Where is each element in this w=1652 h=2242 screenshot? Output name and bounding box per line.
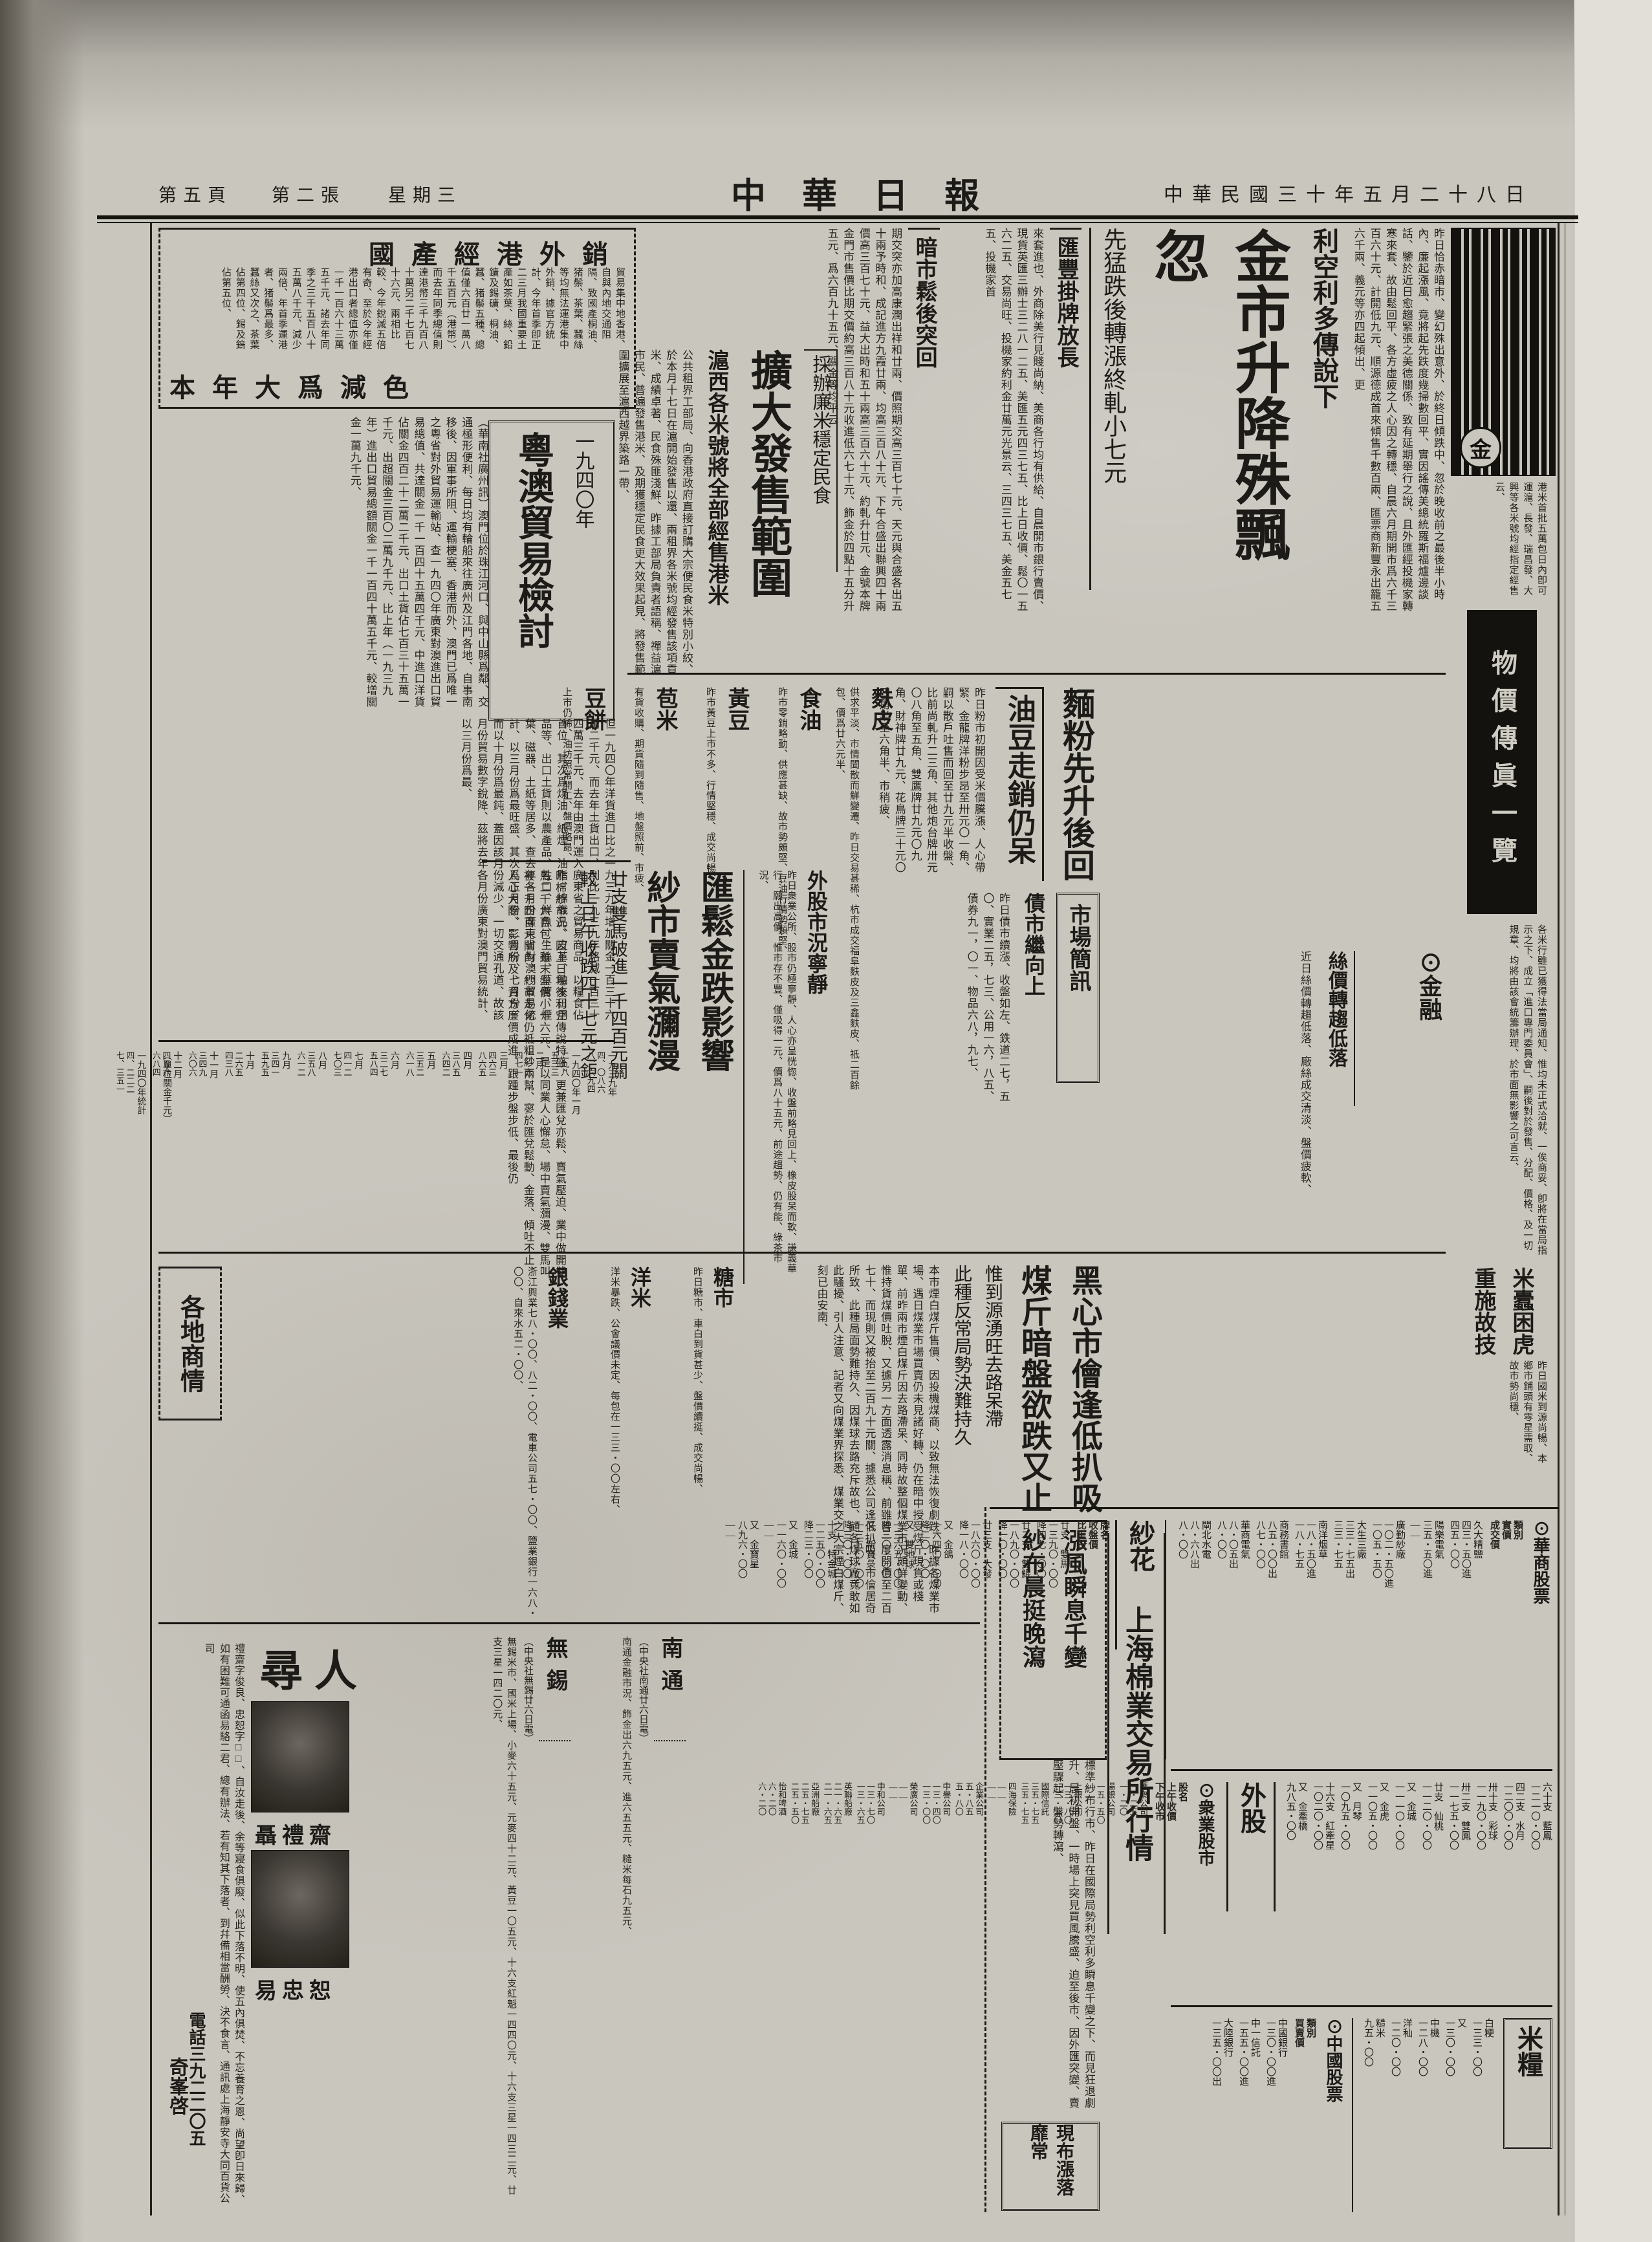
share-name: 榮廣公司 — [908, 1782, 918, 1879]
share-name: 國際信託 — [1039, 1782, 1050, 1879]
yarn-brand: 廿二支 雙鯤 — [1019, 1520, 1031, 1617]
huashang-row: 大生三廠 三三・七五出 三三・七五 — [1332, 1520, 1367, 1759]
foreign-yarn-price: 一〇二〇・〇〇 — [1312, 1782, 1323, 1860]
export-headline-bottom: 本年大爲減色 — [169, 367, 426, 404]
share-pm: 一三・五〇 — [1052, 1782, 1063, 1853]
shahua-col-name: 牌名 — [1098, 1520, 1110, 1617]
yueao-table-column: 十月 二六五 四三八 — [223, 1051, 254, 1229]
sheet-number: 第二張 — [272, 181, 375, 207]
masthead: 中華日報 — [718, 167, 1028, 207]
regional-box-label: 各地商情 — [173, 1294, 208, 1393]
waigu-label: 外股 — [1226, 1782, 1276, 1911]
yueao-table-column: 十一月 三四九 六〇六 — [187, 1051, 218, 1229]
bond-headline: 債市繼向上 — [1019, 893, 1049, 1048]
share-am: 五・八五 — [964, 1782, 974, 1860]
bank-price: 一三五・〇〇出 — [1210, 2018, 1222, 2096]
zhongye-row: 國際信託 三五・七五 三五・七五 — [1019, 1782, 1050, 1996]
foreign-yarn-price: 一二一〇・〇〇 — [1529, 1782, 1541, 1860]
yarn-change: 降三〇・〇〇 — [880, 1520, 891, 1591]
flour-body: 昨日粉市初開因受米價騰漲、人心帶緊、金龍牌洋粉步昂至卅元〇一角、嗣以散戶吐售而回… — [902, 687, 986, 878]
stock-price: 八五・〇〇出 — [1266, 1520, 1277, 1598]
huashang-col-name: 類別 — [1512, 1520, 1523, 1617]
grain-price: 一二〇・〇〇 — [1389, 2018, 1401, 2109]
coal-top-rule — [158, 1252, 1446, 1254]
wire-byline: （中央社無錫廿六日電） — [521, 1637, 535, 1960]
shahua-row: 又 雙地球 一三六五・〇〇 降三〇・〇〇 — [880, 1520, 915, 1759]
foreign-yarn-name: 又 月琴 — [1351, 1782, 1362, 1905]
yarn-close: 一三九〇・〇〇 — [1047, 1520, 1058, 1598]
price-digest-banner: 物價傳眞一覽 — [1467, 610, 1537, 914]
yarn-brand: 又 金鴿 — [942, 1520, 953, 1617]
zhongye-row: 四海保險 —— —— — [986, 1782, 1017, 1996]
zhongye-col-name: 股名 — [1177, 1782, 1188, 1879]
grain-price: 一三三・〇〇 — [1471, 2018, 1483, 2109]
gold-body-1: 昨日恰赤暗市、變幻殊出意外、於終日傾跌中、忽於晚收前之最後半小時內、廉起漲風、竟… — [1350, 228, 1446, 613]
yarn-change: 降四七・〇〇 — [1035, 1520, 1047, 1591]
stock-name: 商務書館 — [1277, 1520, 1289, 1617]
yarn-headline-2: 紗市賣氣瀰漫 — [636, 870, 684, 1284]
miliang-label: 米糧 — [1503, 2018, 1552, 2149]
zhongye-header: 股名 上午收價 下午收市 — [1153, 1782, 1188, 1996]
foreign-yarn-price: 一〇九五・〇〇 — [1339, 1782, 1351, 1860]
foreign-yarn-price: 一二〇〇・〇〇 — [1502, 1782, 1514, 1860]
commodity-title: 豆餅 — [577, 687, 609, 816]
stock-done: 三三・七五 — [1332, 1520, 1343, 1591]
article-flour: 麵粉先升後回 油豆走銷仍呆 昨日粉市初開因受米價騰漲、人心帶緊、金龍牌洋粉步昂至… — [906, 687, 1100, 881]
share-am: 一・二五 — [1128, 1782, 1138, 1860]
rail-snippet: 港米首批五萬包日內卽可運滬、長發、瑞昌發、大興等各米號均經指定經售云、 — [1451, 482, 1548, 605]
waigu-row: 卅十支 彩球 一一九〇・〇〇 — [1475, 1782, 1498, 1996]
rail-subhead-1: 米蠹困虎 — [1505, 1267, 1537, 1355]
share-am: 一三・八〇 — [1062, 1782, 1072, 1860]
exchange-band-a: ⊙華商股票 類別 實價 成交價 久大精鹽 四三・五〇進 四五・〇〇 陽樂電氣 三… — [1171, 1520, 1552, 1759]
zhongye-row: 中譽公司 一三・四〇 一三・〇〇 — [921, 1782, 951, 1996]
exchange-band-rule — [1171, 1769, 1552, 1771]
export-value: 六四二 — [440, 1051, 451, 1096]
waigu-row: 又 月琴 一〇九五・〇〇 — [1339, 1782, 1362, 1996]
stock-name: 廣勤紗廠 — [1394, 1520, 1406, 1617]
yarn-change: 降三〇・〇〇 — [841, 1520, 853, 1591]
huashang-title: ⊙華商股票 — [1528, 1520, 1552, 1662]
import-value: 三五八 — [306, 1051, 316, 1096]
zhongye-row: 企業公司 五・八五 五・八〇 — [953, 1782, 984, 1996]
share-am: 一三・七〇 — [865, 1782, 876, 1860]
import-value: 三四一 — [270, 1051, 280, 1096]
month-label: 八月 — [316, 1051, 327, 1135]
stock-done: 八・〇〇 — [1177, 1520, 1188, 1591]
month-label: 四月 — [461, 1051, 472, 1135]
zhongye-row: 亞洲船廠 二五・七五 二五・五〇 — [789, 1782, 820, 1996]
regional-section: 洋米 洋米暴跌、公會議價未定、每包在一三三・〇〇左右、 — [582, 1267, 655, 1622]
missing-photo-2 — [251, 1850, 349, 1968]
zhongguo-table-group: ⊙中國股票 類別 買賣價 中國銀行 一三〇・〇〇進 中一信託 一五五・〇〇進 大… — [1210, 2018, 1353, 2212]
miliang-row: 白粳 一三三・〇〇 — [1471, 2018, 1494, 2212]
foreign-yarn-name: 卅二支 雙鳳 — [1459, 1782, 1471, 1905]
stock-name: 華商電氣 — [1239, 1520, 1250, 1617]
zhongye-row: 匯衆公司 一・二五 一・二〇 — [1118, 1782, 1148, 1996]
yarn-body: 昨棉紗市況、因上日場後利空傳說特盛、更兼匯兌亦鬆、賣氣壓迫、業中做開雙馬二千六百… — [482, 870, 567, 1281]
yarn-subhead-2: 較上日午收跌四十七元之鉅 — [575, 870, 600, 1181]
share-am: 一三・四〇 — [931, 1782, 941, 1860]
huashang-table-group: ⊙華商股票 類別 實價 成交價 久大精鹽 四三・五〇進 四五・〇〇 陽樂電氣 三… — [1177, 1520, 1552, 1759]
zhongye-row: 中和公司 一三・七〇 一三・六五 — [855, 1782, 886, 1996]
share-name: 怡和啤酒 — [777, 1782, 787, 1879]
rice-subhead: 滬西各米號將全部經售港米 — [701, 349, 732, 680]
gold-headline-group: 利空利多傳說下 金市升降殊飄忽 先猛跌後轉漲終軋小七元 — [1089, 228, 1342, 616]
rail-body: 各米行雖已獲得法當局通知、惟均未正式洽就、一俟商妥、卽將在當局指示之下、成立「進… — [1451, 924, 1548, 1261]
commodity-title: 黃豆 — [721, 687, 752, 816]
rice-body: 公共租界工部局、向香港政府直接訂購大宗便民食米特別小絞、於本月十七日在滬開始發售… — [614, 349, 694, 676]
huashang-row: 久大精鹽 四三・五〇進 四五・〇〇 — [1448, 1520, 1483, 1759]
exchange-band-rule-2 — [1171, 2005, 1552, 2007]
export-value: 五九五 — [259, 1051, 270, 1096]
article-yarn: 外股市況寧靜 昨日衆業公所、股市仍極寧靜、人心亦呈恍惚、收盤前略見回上、橡皮股呆… — [482, 870, 831, 1284]
grain-name: 洋秈 — [1401, 2018, 1413, 2089]
huashang-col-price: 實價 — [1500, 1520, 1512, 1598]
regional-section-body: 昨日糖市、車白到貨甚少、盤價續挺、成交尚暢、 — [665, 1267, 704, 1619]
yarn-brand: 又 金城 — [787, 1520, 798, 1617]
zhongye-row: 湯銀公司 一五・五〇 —— — [1085, 1782, 1115, 1996]
market-brief-box: 市場簡訊 — [1056, 893, 1100, 1083]
yarn-change: —— — [724, 1520, 736, 1591]
stocks-section: 外股市況寧靜 昨日衆業公所、股市仍極寧靜、人心亦呈恍惚、收盤前略見回上、橡皮股呆… — [752, 870, 831, 1284]
import-value: 三五二 — [415, 1051, 425, 1096]
huashang-rows: 久大精鹽 四三・五〇進 四五・〇〇 陽樂電氣 三五・五〇進 —— 廣勤紗廠 一〇… — [1177, 1520, 1483, 1759]
right-frame-rule — [1558, 223, 1560, 2215]
grain-name: 白粳 — [1483, 2018, 1494, 2089]
wire-reports: 南通 （中央社南通廿六日電） 南通金融市況、飾金出六九五元、進六五五元、糙米每石… — [401, 1637, 686, 2206]
foreign-yarn-price: 一一〇五・〇〇 — [1366, 1782, 1378, 1860]
share-pm: 一・二〇 — [1118, 1782, 1128, 1853]
export-body: 貿易集中地香港、自與內地交通阻隔、致國產桐油、猪鬃、茶葉、蠶絲等均無法運港集中外… — [186, 267, 626, 358]
weekday: 星期三 — [388, 181, 505, 207]
section-logo-graphic: 金 — [1451, 228, 1556, 476]
month-label: 九月 — [279, 1051, 290, 1135]
foreign-yarn-price: 一一一〇・〇〇 — [1393, 1782, 1405, 1860]
share-pm: —— — [888, 1782, 898, 1853]
regional-section-title: 洋米 — [625, 1267, 655, 1383]
stock-name: 久大精鹽 — [1472, 1520, 1483, 1617]
yueao-table-column: 六月 三二七 五八四 — [368, 1051, 399, 1229]
flour-headline-2: 油豆走銷仍呆 — [995, 687, 1044, 881]
share-pm: 一三・六五 — [855, 1782, 865, 1853]
month-label: 五月 — [424, 1051, 435, 1135]
share-am: 二五・七五 — [799, 1782, 810, 1860]
silk-headline: 絲價轉趨低落 — [1321, 951, 1355, 1106]
foreign-yarn-name: 十六支 紅牽星 — [1323, 1782, 1335, 1905]
stock-done: 一〇五・五〇 — [1371, 1520, 1382, 1591]
paper-right-edge — [1574, 0, 1652, 2242]
stock-name: 閘北水電 — [1200, 1520, 1212, 1617]
share-pm: 五・八〇 — [953, 1782, 964, 1853]
foreign-yarn-name: 卅十支 彩球 — [1486, 1782, 1498, 1905]
yarn-close: 一三六五・〇〇 — [891, 1520, 903, 1598]
yarn-brand: 又 金寶星 — [748, 1520, 759, 1617]
rail-tail: 昨日國米到源尚暢、本鄉市鋪頭有零星需取、故市勢尚穩、 — [1451, 1360, 1548, 1470]
import-value: 三二七 — [378, 1051, 389, 1096]
wire-city: 無錫 — [539, 1637, 571, 1741]
zhongguo-header: 類別 買賣價 — [1293, 2018, 1316, 2212]
shahua-header: 牌名 收盤價 比上日 — [1075, 1520, 1110, 1759]
stock-name: 大生三廠 — [1355, 1520, 1367, 1617]
yueao-table-column: 四月 三八五 六四二 — [440, 1051, 472, 1229]
gold-body-3: 期交突亦加高康潤出祥和廿兩、價照期交高三百七十元、天元與合盛各出五十兩予時和、成… — [787, 228, 903, 613]
stock-price: 三三・七五出 — [1343, 1520, 1355, 1598]
stock-done: 八七・〇〇 — [1254, 1520, 1266, 1591]
coal-kicker-2: 此種反常局勢決難持久 — [948, 1265, 974, 1536]
share-pm: —— — [1085, 1782, 1095, 1853]
zhongguo-row: 中國銀行 一三〇・〇〇進 — [1265, 2018, 1288, 2212]
import-value: 三八五 — [451, 1051, 461, 1096]
shahua-row: 廿三支 大發 一八六〇・〇〇 降一八・〇〇 — [957, 1520, 992, 1759]
finance-band: ⊙金融 絲價轉趨低落 近日絲價轉趨低落、廠絲成交清淡、盤價疲軟、 — [1113, 951, 1446, 1248]
shahua-row: 十支 特金城 一二五〇・〇〇 降二三・〇〇 — [802, 1520, 837, 1759]
flour-headline: 麵粉先升後回 — [1053, 687, 1100, 881]
yarn-change: 降二三・〇〇 — [802, 1520, 814, 1591]
ad-missing-person: 尋人 聶禮齋 易忠恕 禮齋字俊良、忠恕字□□、自汝走後、余等寢食俱廢、似此下落不… — [158, 1637, 375, 2212]
missing-title: 尋人 — [260, 1637, 369, 1699]
yarn-close: 一二五〇・〇〇 — [814, 1520, 825, 1598]
mid-rule — [627, 673, 1446, 675]
exchange-top-rule — [990, 1507, 1559, 1509]
zhongye-row: 英聯船廠 二一・六五 二一・六五 — [822, 1782, 853, 1996]
waigu-row: 又 金城 一一一〇・〇〇 — [1393, 1782, 1417, 1996]
share-name: 匯衆公司 — [1138, 1782, 1148, 1879]
waigu-row: 四二支 水月 一二〇〇・〇〇 — [1502, 1782, 1525, 1996]
foreign-yarn-name: 廿支 仙桃 — [1432, 1782, 1444, 1905]
stocks-body: 昨日衆業公所、股市仍極寧靜、人心亦呈恍惚、收盤前略見回上、橡皮股呆而軟、謙義華行… — [752, 870, 798, 1281]
rail-subhead-group: 米蠹困虎 重施故技 — [1451, 1267, 1553, 1355]
commodity-body: 供求平淡、市情聞散而鮮變遷、昨日交易甚稀、杭市成交福阜麩皮及三鑫麩皮、祗二百餘包… — [832, 687, 860, 1101]
regional-section: 銀錢業 浙江興業七八・〇〇、八二・〇〇、電車公司五七・〇〇、鹽業銀行一六八・〇〇… — [499, 1267, 572, 1622]
commodity-section: 麩皮 供求平淡、市情聞散而鮮變遷、昨日交易甚稀、杭市成交福阜麩皮及三鑫麩皮、祗二… — [832, 687, 896, 1104]
gold-sub2: 暗市鬆後突回 — [908, 228, 940, 417]
month-label: 十月 — [243, 1051, 254, 1135]
grain-name: 中機 — [1428, 2018, 1440, 2089]
gold-sub2-group: 暗市鬆後突回 期交突亦加高康潤出祥和廿兩、價照期交高三百七十元、天元與合盛各出五… — [787, 228, 940, 616]
shahua-rows: 廿支 雙馬 一三九〇・〇〇 降四七・〇〇 廿二支 雙鯤 一八九〇・〇〇 降一〇・… — [724, 1520, 1070, 1759]
share-name: 上銀公司 — [1072, 1782, 1083, 1879]
zhongguo-rows: 中國銀行 一三〇・〇〇進 中一信託 一五五・〇〇進 大陸銀行 一三五・〇〇出 — [1210, 2018, 1288, 2212]
share-name: 四海保險 — [1006, 1782, 1017, 1879]
stock-name: 陽樂電氣 — [1433, 1520, 1444, 1617]
wire-body: 南通金融市況、飾金出六九五元、進六五五元、糙米每石九五元、 — [581, 1637, 633, 2203]
foreign-yarn-name: 又 金城 — [1405, 1782, 1417, 1905]
yarn-change: 降一〇・〇〇 — [996, 1520, 1008, 1591]
grain-name: 糙米 — [1374, 2018, 1386, 2089]
yueao-table-column: 八月 三五八 六一二 — [296, 1051, 327, 1229]
share-am: 三五・七五 — [1029, 1782, 1039, 1860]
yarn-brand: 十支 特金城 — [825, 1520, 837, 1617]
share-am: 一五・五〇 — [1095, 1782, 1105, 1860]
zhongye-row: 榮廣公司 —— —— — [888, 1782, 918, 1996]
yarn-change: 降二〇・〇〇 — [918, 1520, 930, 1591]
yarn-close: 一八九〇・〇〇 — [1008, 1520, 1019, 1598]
foreign-yarn-price: 一一九〇・〇〇 — [1475, 1782, 1486, 1860]
logo-seal: 金 — [1460, 427, 1501, 468]
yarn-subhead: 廿支雙馬破進一千四百元關 — [605, 870, 631, 1181]
regional-section-body: 浙江興業七八・〇〇、八二・〇〇、電車公司五七・〇〇、鹽業銀行一六八・〇〇、自來水… — [499, 1267, 538, 1619]
huashang-row: 商務書館 八五・〇〇出 八七・〇〇 — [1254, 1520, 1289, 1759]
finance-quote-list — [1364, 951, 1403, 1248]
yarn-close: 一一六〇・〇〇 — [775, 1520, 787, 1598]
export-value: 六〇六 — [187, 1051, 197, 1096]
zhongye-row: 怡和啤酒 六・二〇 六・二〇 — [757, 1782, 787, 1996]
yarn-headline: 匯鬆金跌影響 — [690, 870, 738, 1284]
gold-kicker: 利空利多傳說下 — [1305, 228, 1342, 499]
waigu-row: 卅二支 雙鳳 一一七五・〇〇 — [1448, 1782, 1471, 1996]
export-headline: 國產經港外銷 — [369, 234, 625, 271]
foreign-yarn-name: 四二支 水月 — [1514, 1782, 1525, 1905]
stock-price: 一八・五〇進 — [1305, 1520, 1316, 1598]
yueao-table-column: 一九四〇年統計 四、二二二 七、三五一 — [114, 1051, 146, 1229]
gold-body-2: 來套進也、外商除美行見賤尚納、美商各行均有供給、自晨開市銀行賣價、現貨英匯三辦士… — [948, 228, 1045, 613]
cloth-box-text: 現布漲落靡常 — [1025, 2124, 1076, 2209]
shahua-row: 又 金鴿 一六四〇・〇〇 降二〇・〇〇 — [918, 1520, 953, 1759]
shahua-row: 又 金寶星 八九六・〇〇 —— — [724, 1520, 759, 1759]
regional-box: 各地商情 — [158, 1267, 222, 1420]
missing-name-2: 易忠恕 — [255, 1973, 336, 2005]
yueao-table-column: 九月 三四一 五九五 — [259, 1051, 290, 1229]
foreign-yarn-price: 一一七五・〇〇 — [1448, 1782, 1459, 1860]
stock-done: 八・〇〇 — [1215, 1520, 1227, 1591]
stock-price: 八・〇五出 — [1227, 1520, 1239, 1598]
export-value: 六一二 — [296, 1051, 306, 1096]
miliang-row: 糙米 九五・〇〇 — [1362, 2018, 1386, 2212]
grain-name: 又 — [1455, 2018, 1467, 2089]
gold-sub1: 匯豐掛牌放長 — [1050, 228, 1081, 417]
commodity-title: 食油 — [792, 687, 824, 816]
shahua-table-group: 紗花 牌名 收盤價 比上日 廿支 雙馬 一三九〇・〇〇 降四七・〇〇 廿二支 雙… — [724, 1520, 1166, 1759]
share-pm: 六・二〇 — [757, 1782, 767, 1853]
import-value: 三四九 — [197, 1051, 208, 1096]
zhongye-col-am: 上午收價 — [1165, 1782, 1177, 1860]
zhongguo-col-price: 買賣價 — [1293, 2018, 1305, 2096]
stocks-headline: 外股市況寧靜 — [801, 870, 831, 1019]
zhongye-title: ⊙衆業股市 — [1193, 1782, 1217, 1924]
bank-name: 中一信託 — [1249, 2018, 1261, 2115]
share-am: —— — [997, 1782, 1007, 1860]
page-number: 第五頁 — [158, 181, 255, 207]
coal-kicker: 惟到源湧旺去路呆滯 — [979, 1265, 1005, 1536]
share-name: 湯銀公司 — [1105, 1782, 1116, 1879]
bank-price: 一五五・〇〇進 — [1237, 2018, 1249, 2096]
share-name: 英聯船廠 — [842, 1782, 853, 1879]
rail-subhead-2: 重施故技 — [1467, 1267, 1499, 1355]
yueao-kicker: 一九四〇年 — [569, 431, 597, 710]
export-value: 七、三五一 — [114, 1051, 125, 1096]
stock-price: 四三・五〇進 — [1460, 1520, 1472, 1598]
bank-price: 一三〇・〇〇進 — [1265, 2018, 1276, 2096]
export-value: 七〇三 — [332, 1051, 342, 1096]
zhongye-row: 上銀公司 一三・八〇 一三・五〇 — [1052, 1782, 1083, 1996]
huashang-row: 南洋烟草 一八・五〇進 一八・七五 — [1293, 1520, 1328, 1759]
export-value: 五八四 — [368, 1051, 378, 1096]
import-value: 二六五 — [234, 1051, 244, 1096]
header-rule-2 — [97, 222, 1578, 223]
huashang-row: 閘北水電 八・六八出 八・〇〇 — [1177, 1520, 1212, 1759]
share-pm: 二一・六五 — [822, 1782, 832, 1853]
share-am: 二一・六五 — [832, 1782, 843, 1860]
foreign-yarn-name: 又 金虎 — [1378, 1782, 1389, 1905]
export-value: 四三八 — [223, 1051, 234, 1096]
stock-price: 三五・五〇進 — [1421, 1520, 1433, 1598]
price-digest-banner-text: 物價傳眞一覽 — [1483, 649, 1521, 875]
zhongye-col-pm: 下午收市 — [1153, 1782, 1165, 1853]
cloth-box: 現布漲落靡常 — [1001, 2122, 1100, 2211]
commodity-title: 麩皮 — [864, 687, 896, 816]
shahua-col-close: 收盤價 — [1087, 1520, 1098, 1598]
yueao-table-column: 五月 三五二 六一八 — [404, 1051, 435, 1229]
shahua-row: 廿支 雙馬 一三九〇・〇〇 降四七・〇〇 — [1035, 1520, 1070, 1759]
month-label: 六月 — [388, 1051, 399, 1135]
regional-section-title: 銀錢業 — [542, 1267, 572, 1383]
month-label: 一九四〇年統計 — [135, 1051, 146, 1135]
yarn-change: —— — [763, 1520, 775, 1591]
wire-city: 南通 — [654, 1637, 686, 1741]
wire-body: 無錫米市、國米上場、小麥六十五元、元麥四十二元、黃豆一〇五元、十六支紅魁一四四〇… — [466, 1637, 517, 2203]
grain-price: 九五・〇〇 — [1362, 2018, 1374, 2109]
foreign-yarn-price: 九八五・〇〇 — [1285, 1782, 1296, 1860]
waigu-row: 十六支 紅牽星 一〇二〇・〇〇 — [1312, 1782, 1335, 1996]
miliang-row: 中機 一二八・〇〇 — [1417, 2018, 1440, 2212]
import-value: 四、二二二 — [125, 1051, 135, 1096]
finance-title: ⊙金融 — [1412, 951, 1446, 1054]
missing-photo-1 — [251, 1701, 349, 1812]
share-am: 六・二〇 — [766, 1782, 777, 1860]
missing-signer: 奇峯啓 — [162, 2057, 191, 2154]
wire-byline: （中央社南通廿六日電） — [636, 1637, 650, 1960]
yarn-headline-group: 匯鬆金跌影響 紗市賣氣瀰漫 廿支雙馬破進一千四百元關 較上日午收跌四十七元之鉅 — [575, 870, 744, 1284]
yarn-top-rule — [482, 860, 631, 862]
miliang-row: 洋秈 一二〇・〇〇 — [1389, 2018, 1413, 2212]
bank-name: 大陸銀行 — [1222, 2018, 1234, 2115]
commodity-title: 苞米 — [649, 687, 680, 816]
yueao-table-note: （單位關金千元） — [160, 1051, 173, 1124]
zhongye-rows: 匯衆公司 一・二五 一・二〇 湯銀公司 一五・五〇 —— 上銀公司 一三・八〇 … — [757, 1782, 1148, 1996]
zhongguo-title: ⊙中國股票 — [1321, 2018, 1345, 2160]
huashang-header: 類別 實價 成交價 — [1488, 1520, 1523, 1759]
yarn-close: 一六四〇・〇〇 — [930, 1520, 942, 1598]
shahua-col-change: 比上日 — [1075, 1520, 1087, 1591]
share-am: —— — [898, 1782, 908, 1860]
wire-report: 南通 （中央社南通廿六日電） 南通金融市況、飾金出六九五元、進六五五元、糙米每石… — [581, 1637, 686, 2206]
wire-report: 無錫 （中央社無錫廿六日電） 無錫米市、國米上場、小麥六十五元、元麥四十二元、黃… — [466, 1637, 571, 2206]
paper-left-edge — [0, 0, 84, 2242]
share-pm: 一三・〇〇 — [921, 1782, 931, 1853]
grain-price: 一二八・〇〇 — [1417, 2018, 1428, 2109]
yueao-headline-box: 一九四〇年 粵澳貿易檢討 — [488, 420, 615, 721]
yarn-brand: 又 新寶彔 — [864, 1520, 876, 1617]
stock-price: 一〇二・五〇進 — [1382, 1520, 1394, 1598]
yarn-close: 一三五〇・〇〇 — [853, 1520, 864, 1598]
huashang-row: 華商電氣 八・〇五出 八・〇〇 — [1215, 1520, 1250, 1759]
article-export-decline: 國產經港外銷 貿易集中地香港、自與內地交通阻隔、致國產桐油、猪鬃、茶葉、蠶絲等均… — [158, 228, 636, 409]
stock-done: 一八・七五 — [1293, 1520, 1305, 1591]
yarn-change: 降一八・〇〇 — [957, 1520, 969, 1591]
regional-section-title: 糖市 — [708, 1267, 737, 1383]
stock-done: 四五・〇〇 — [1448, 1520, 1460, 1591]
dateline: 中華民國三十年五月二十八日 — [1135, 179, 1562, 206]
shahua-row: 又 新寶彔 一三五〇・〇〇 降三〇・〇〇 — [841, 1520, 876, 1759]
yarn-brand: 廿支 雙馬 — [1058, 1520, 1070, 1617]
gold-headline: 金市升降殊飄忽 — [1136, 228, 1298, 616]
yarn-brand: 廿三支 大發 — [981, 1520, 992, 1617]
share-name: 亞洲船廠 — [810, 1782, 820, 1879]
yarn-close: 八九六・〇〇 — [736, 1520, 748, 1598]
huashang-col-done: 成交價 — [1488, 1520, 1500, 1591]
huashang-row: 廣勤紗廠 一〇二・五〇進 一〇五・五〇 — [1371, 1520, 1406, 1759]
